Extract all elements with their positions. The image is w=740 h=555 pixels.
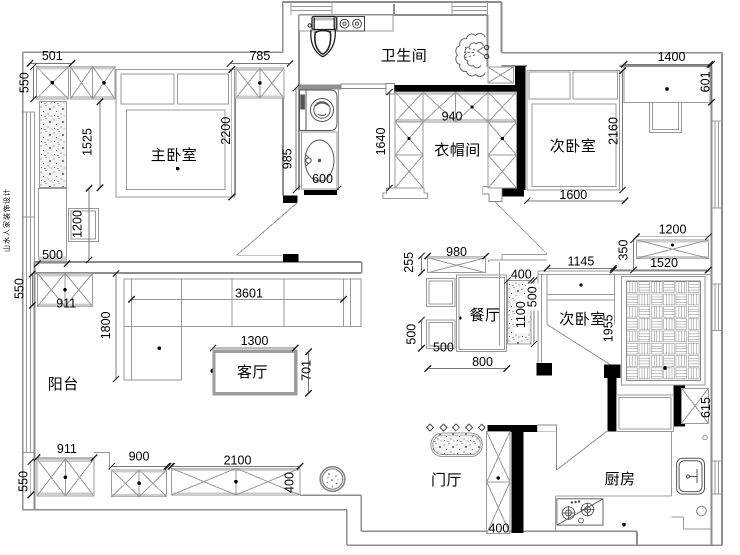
svg-text:山水人家装饰设计: 山水人家装饰设计 bbox=[2, 188, 11, 252]
svg-text:800: 800 bbox=[472, 355, 493, 369]
svg-text:厨房: 厨房 bbox=[604, 471, 635, 488]
svg-text:2200: 2200 bbox=[219, 117, 233, 145]
svg-text:550: 550 bbox=[18, 72, 32, 93]
svg-text:1520: 1520 bbox=[650, 256, 678, 270]
svg-text:1400: 1400 bbox=[658, 50, 686, 64]
svg-text:785: 785 bbox=[249, 49, 270, 63]
svg-text:1200: 1200 bbox=[71, 210, 85, 238]
svg-text:2160: 2160 bbox=[607, 117, 621, 145]
svg-text:550: 550 bbox=[17, 471, 31, 492]
svg-text:1955: 1955 bbox=[601, 314, 615, 342]
svg-text:1300: 1300 bbox=[241, 334, 269, 348]
svg-text:1600: 1600 bbox=[559, 188, 587, 202]
svg-text:阳台: 阳台 bbox=[48, 376, 79, 393]
svg-text:2100: 2100 bbox=[224, 454, 252, 468]
svg-text:911: 911 bbox=[56, 297, 76, 311]
svg-text:980: 980 bbox=[446, 245, 467, 259]
svg-text:985: 985 bbox=[281, 148, 295, 169]
svg-text:1800: 1800 bbox=[99, 311, 113, 339]
svg-text:次卧室: 次卧室 bbox=[559, 311, 606, 328]
svg-text:501: 501 bbox=[42, 49, 63, 63]
svg-text:餐厅: 餐厅 bbox=[469, 307, 500, 324]
svg-text:1145: 1145 bbox=[567, 255, 594, 269]
svg-text:400: 400 bbox=[511, 268, 532, 282]
svg-text:350: 350 bbox=[616, 240, 630, 261]
svg-text:900: 900 bbox=[129, 450, 150, 464]
svg-text:500: 500 bbox=[433, 340, 454, 354]
svg-text:601: 601 bbox=[698, 71, 712, 92]
svg-text:500: 500 bbox=[405, 324, 419, 345]
svg-text:1525: 1525 bbox=[81, 128, 95, 156]
svg-text:550: 550 bbox=[13, 278, 27, 299]
svg-text:门厅: 门厅 bbox=[431, 472, 462, 489]
svg-text:600: 600 bbox=[312, 172, 333, 186]
svg-text:500: 500 bbox=[525, 286, 539, 307]
svg-text:主卧室: 主卧室 bbox=[151, 147, 198, 164]
svg-text:615: 615 bbox=[699, 397, 713, 418]
svg-text:940: 940 bbox=[442, 110, 463, 124]
svg-text:400: 400 bbox=[282, 472, 296, 493]
svg-text:911: 911 bbox=[57, 442, 77, 456]
svg-text:3601: 3601 bbox=[235, 287, 263, 301]
svg-text:次卧室: 次卧室 bbox=[550, 138, 597, 155]
svg-text:701: 701 bbox=[300, 360, 314, 381]
svg-text:1200: 1200 bbox=[659, 223, 687, 237]
svg-text:衣帽间: 衣帽间 bbox=[434, 142, 481, 159]
svg-text:卫生间: 卫生间 bbox=[381, 48, 428, 65]
svg-text:客厅: 客厅 bbox=[237, 364, 268, 381]
svg-text:500: 500 bbox=[42, 248, 63, 262]
svg-text:255: 255 bbox=[402, 252, 416, 273]
svg-text:1640: 1640 bbox=[374, 128, 388, 156]
svg-text:400: 400 bbox=[488, 522, 509, 536]
